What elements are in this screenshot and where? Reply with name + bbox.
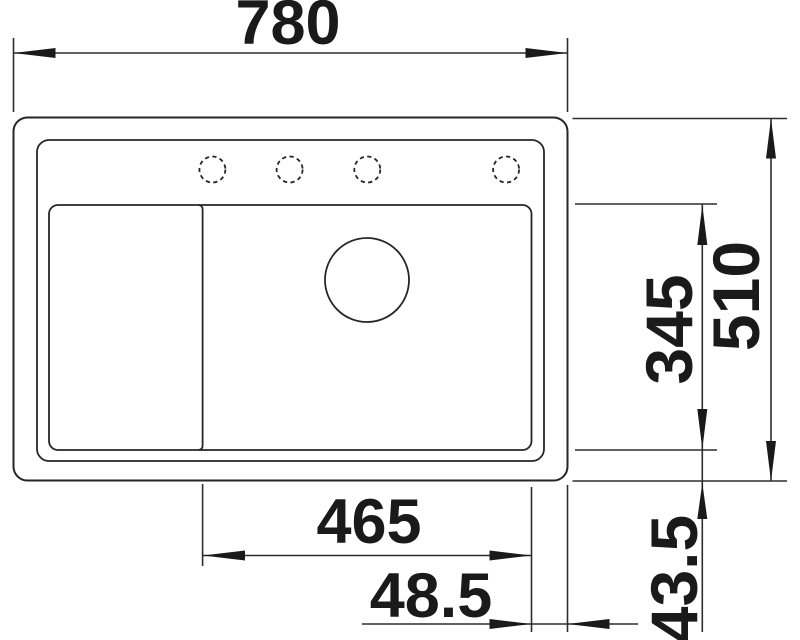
svg-text:345: 345 bbox=[632, 274, 706, 384]
svg-text:43.5: 43.5 bbox=[637, 515, 711, 640]
svg-text:780: 780 bbox=[235, 0, 340, 58]
svg-text:48.5: 48.5 bbox=[370, 561, 493, 631]
svg-text:465: 465 bbox=[316, 487, 421, 557]
svg-text:510: 510 bbox=[699, 241, 773, 351]
